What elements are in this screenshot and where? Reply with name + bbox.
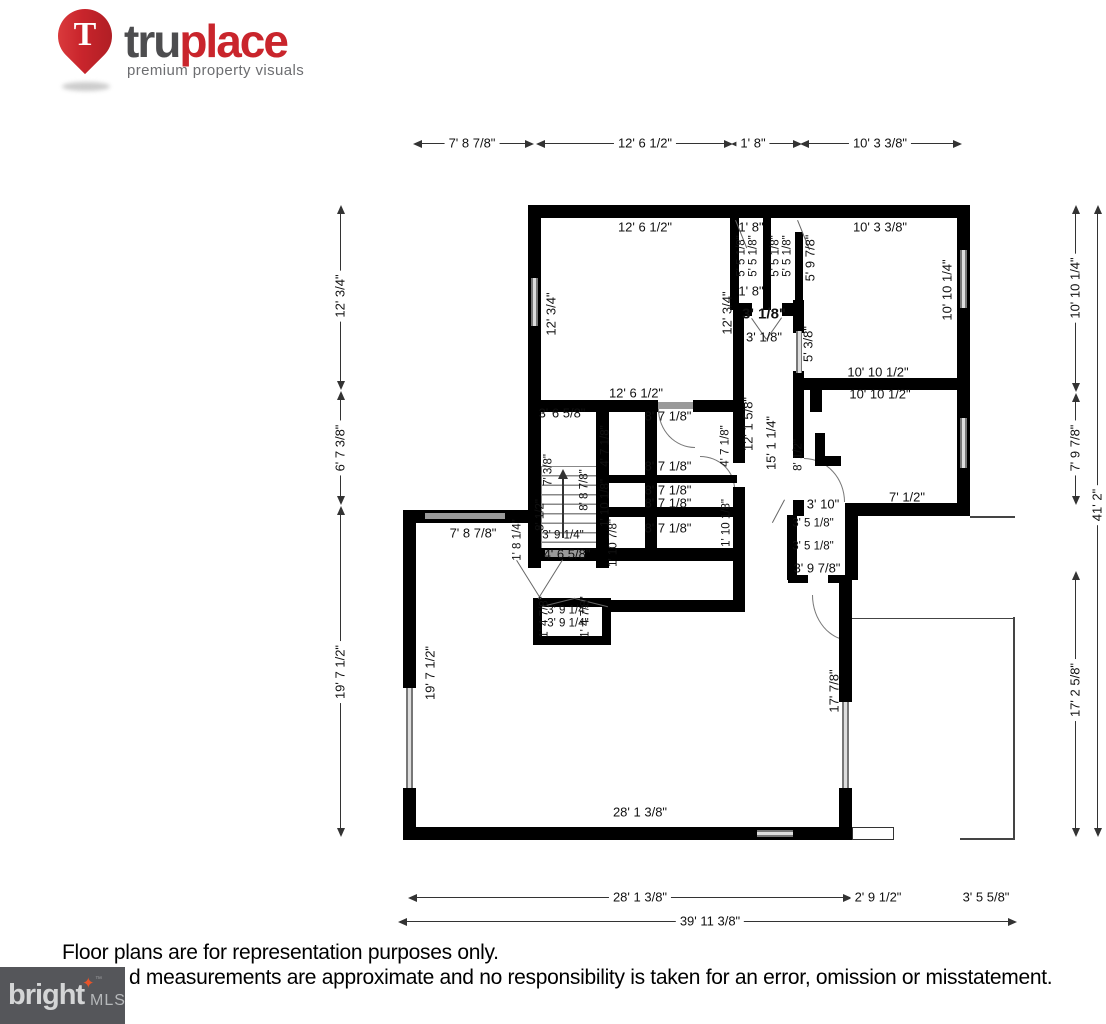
dim-label: 19' 7 1/2" bbox=[424, 646, 437, 700]
dim-label: 12' 1 5/8" bbox=[742, 397, 755, 451]
wall bbox=[828, 575, 848, 583]
disclaimer-line-2: d measurements are approximate and no re… bbox=[129, 966, 1052, 990]
dim-label: 3' 9 1/4" bbox=[542, 530, 583, 542]
dim-label: 10' 10 1/4" bbox=[1069, 253, 1082, 322]
dim-label: 3' 10" bbox=[807, 498, 839, 511]
dim-label: 8' 7 1/8" bbox=[645, 460, 692, 473]
window bbox=[406, 688, 413, 788]
wall bbox=[733, 548, 745, 612]
wall bbox=[788, 575, 808, 583]
pin-letter: T bbox=[74, 16, 97, 54]
dim-label: 41' 2" bbox=[1091, 485, 1104, 525]
dim-label: 7' 8 7/8" bbox=[445, 137, 500, 150]
dim-label: 5' 5 1/8" bbox=[770, 235, 782, 276]
patio-line bbox=[960, 838, 1015, 840]
dim-label: 3' 6 5/8" bbox=[539, 407, 586, 420]
window bbox=[757, 830, 793, 837]
wall bbox=[845, 515, 858, 580]
dim-label: 1' 8" bbox=[738, 285, 763, 298]
dim-label: 8' 1/2" bbox=[793, 439, 805, 471]
dim-label: 3' 1/8" bbox=[742, 307, 786, 322]
wall bbox=[602, 600, 745, 612]
stairs-direction-arrow bbox=[558, 464, 568, 479]
mls-label: MLS bbox=[90, 992, 126, 1010]
dim-label: 1' 4 7/8" bbox=[580, 596, 592, 637]
dim-label: 10' 10 1/2" bbox=[847, 366, 908, 379]
door bbox=[425, 513, 505, 519]
dim-label: 8' 7 1/8" bbox=[645, 410, 692, 423]
brand-wordmark: truplace bbox=[124, 18, 287, 64]
wall bbox=[810, 390, 822, 412]
disclaimer-line-1: Floor plans are for representation purpo… bbox=[62, 941, 499, 965]
dim-label: 8' 1/2" bbox=[535, 499, 547, 531]
dim-label: 6' 7 3/8" bbox=[334, 421, 347, 476]
wall bbox=[403, 510, 416, 688]
dim-label: 1' 10 7/8" bbox=[608, 519, 620, 567]
dim-label: 3' 5 1/8" bbox=[792, 518, 833, 530]
dim-label: 10' 3 3/8" bbox=[849, 137, 911, 150]
dim-label: 19' 7 1/2" bbox=[334, 641, 347, 703]
dim-label: 3' 9 7/8" bbox=[794, 562, 841, 575]
door-leaf bbox=[538, 559, 563, 599]
dim-label: 3' 1/8" bbox=[746, 331, 782, 344]
window bbox=[960, 250, 967, 308]
dim-label: 10' 3 3/8" bbox=[853, 221, 907, 234]
dim-label: 12' 3/4" bbox=[721, 291, 734, 334]
dim-label: 7' 1/2" bbox=[889, 491, 925, 504]
brand-tru: tru bbox=[124, 15, 179, 67]
wall bbox=[845, 503, 970, 516]
wall bbox=[839, 788, 852, 840]
dim-label: 4' 7 1/8" bbox=[720, 425, 732, 466]
star-icon: ✦ bbox=[82, 974, 95, 992]
dim-label: 1' 8" bbox=[738, 221, 763, 234]
brand-place: place bbox=[179, 15, 287, 67]
pin-shadow bbox=[62, 82, 110, 91]
dim-label: 12' 6 1/2" bbox=[614, 137, 676, 150]
dim-label: 3' 5 1/8" bbox=[792, 541, 833, 553]
dim-label: 15' 1 1/4" bbox=[765, 416, 778, 470]
dim-label: 3' 5 5/8" bbox=[959, 891, 1014, 904]
patio-line bbox=[970, 516, 1015, 518]
dim-label: 17' 7/8" bbox=[828, 669, 841, 712]
dim-label: 4' 6 5/8" bbox=[544, 548, 591, 561]
dim-label: 7' 8 7/8" bbox=[450, 527, 497, 540]
dim-label: 1' 8 1/4" bbox=[512, 519, 524, 560]
dim-label: 5' 5 1/8" bbox=[748, 235, 760, 276]
dim-label: 1' 8" bbox=[736, 137, 769, 150]
floorplan-page: T truplace premium property visuals bbox=[0, 0, 1106, 1024]
dim-label: 39' 11 3/8" bbox=[676, 915, 744, 928]
window bbox=[842, 702, 849, 788]
dim-label: 2' 9 1/2" bbox=[851, 891, 906, 904]
brand-tagline: premium property visuals bbox=[127, 62, 304, 79]
step-outline bbox=[852, 827, 894, 840]
wall bbox=[815, 456, 841, 466]
dim-label: 10' 10 1/2" bbox=[849, 388, 910, 401]
trademark-symbol: ™ bbox=[95, 976, 102, 983]
dim-label: 1' 4 7/8" bbox=[539, 596, 551, 637]
dim-label: 8' 7 1/8" bbox=[645, 497, 692, 510]
dim-label: 5' 9 7/8" bbox=[804, 235, 817, 282]
patio-line bbox=[1013, 617, 1015, 840]
wall bbox=[528, 205, 970, 218]
dim-label: 8' 7 1/8" bbox=[645, 522, 692, 535]
dim-label: 12' 6 1/2" bbox=[609, 387, 663, 400]
dim-label: 12' 6 1/2" bbox=[618, 221, 672, 234]
bright-wordmark: bright bbox=[8, 979, 84, 1012]
window bbox=[960, 418, 967, 468]
dim-label: 10' 10 1/4" bbox=[941, 259, 954, 320]
patio-line bbox=[850, 618, 1013, 619]
dim-label: 5' 5 1/8" bbox=[736, 235, 748, 276]
dim-label: 7' 3/8" bbox=[543, 454, 555, 486]
dim-label: 12' 3/4" bbox=[545, 292, 558, 335]
dim-label: 17' 2 5/8" bbox=[1069, 659, 1082, 721]
dim-label: 28' 1 3/8" bbox=[609, 891, 671, 904]
window bbox=[531, 278, 538, 326]
dim-label: 8' 8 7/8" bbox=[579, 469, 591, 510]
dim-label: 5' 3/8" bbox=[802, 326, 815, 362]
wall bbox=[793, 500, 804, 516]
dim-label: 12' 3/4" bbox=[334, 270, 347, 321]
dim-label: 1' 10 1/8" bbox=[721, 499, 733, 547]
dim-label: 7' 9 7/8" bbox=[1069, 421, 1082, 476]
dim-label: 28' 1 3/8" bbox=[613, 806, 667, 819]
dim-label: 5' 5 1/8" bbox=[782, 235, 794, 276]
dim-label: 4' 7 1/8" bbox=[600, 425, 612, 466]
bright-mls-logo: bright ✦ ™ MLS bbox=[0, 967, 125, 1024]
door-leaf bbox=[772, 500, 785, 523]
